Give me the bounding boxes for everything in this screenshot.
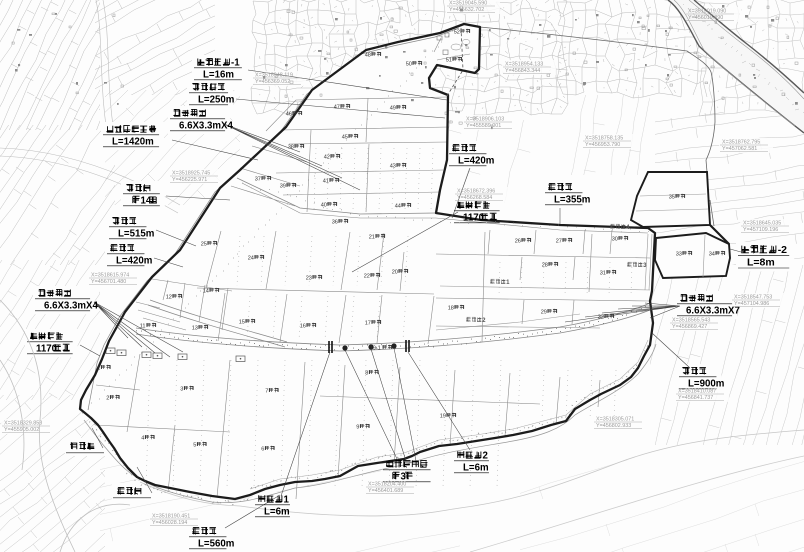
svg-text:26: 26: [515, 238, 521, 244]
svg-text:6: 6: [261, 446, 264, 452]
svg-text:X=3518672.396: X=3518672.396: [457, 189, 495, 195]
svg-text:-1: -1: [231, 58, 240, 69]
svg-text:X=3518948.119: X=3518948.119: [255, 73, 293, 79]
svg-text:52: 52: [454, 29, 460, 35]
svg-text:Y=456869.427: Y=456869.427: [672, 324, 707, 330]
svg-text:L=420m: L=420m: [116, 255, 153, 266]
svg-text:Y=455589.001: Y=455589.001: [466, 123, 501, 129]
svg-text:17: 17: [365, 320, 371, 326]
svg-text:L=250m: L=250m: [198, 94, 235, 105]
svg-text:X=3518190.451: X=3518190.451: [152, 514, 190, 520]
svg-text:32: 32: [598, 314, 604, 320]
svg-text:Y=456843.344: Y=456843.344: [505, 68, 540, 74]
svg-text:13: 13: [192, 325, 198, 331]
svg-text:1: 1: [284, 495, 290, 506]
svg-text:14: 14: [203, 288, 209, 294]
svg-text:X=3519019.090: X=3519019.090: [688, 9, 726, 15]
svg-text:50: 50: [406, 61, 412, 67]
svg-text:1170: 1170: [36, 343, 57, 354]
svg-text:X=3518758.135: X=3518758.135: [585, 136, 623, 142]
svg-text:X=3518410.087: X=3518410.087: [678, 389, 716, 395]
svg-text:34: 34: [709, 251, 715, 257]
svg-text:L=6m: L=6m: [264, 506, 290, 517]
svg-text:L=16m: L=16m: [203, 69, 234, 80]
svg-text:47: 47: [334, 104, 340, 110]
svg-text:30: 30: [612, 236, 618, 242]
svg-text:Y=456028.194: Y=456028.194: [152, 520, 187, 526]
svg-text:21: 21: [369, 234, 375, 240]
svg-text:51: 51: [446, 57, 452, 63]
svg-text:3: 3: [180, 386, 183, 392]
svg-text:X=3518204.400: X=3518204.400: [368, 482, 406, 488]
svg-text:Y=455632.702: Y=455632.702: [449, 7, 484, 13]
svg-text:48: 48: [365, 52, 371, 58]
svg-text:Y=455905.002: Y=455905.002: [4, 427, 39, 433]
svg-text:11: 11: [140, 323, 146, 329]
svg-text:-2: -2: [778, 244, 787, 256]
svg-text:19: 19: [440, 413, 446, 419]
svg-text:49: 49: [390, 105, 396, 111]
svg-text:9: 9: [356, 424, 359, 430]
svg-text:X=3518954.133: X=3518954.133: [505, 62, 543, 68]
svg-text:40: 40: [321, 202, 327, 208]
svg-text:L=8m: L=8m: [747, 257, 775, 269]
svg-text:Y=456953.790: Y=456953.790: [585, 142, 620, 148]
svg-text:33: 33: [676, 251, 682, 257]
svg-text:1: 1: [97, 365, 100, 371]
svg-text:1170: 1170: [463, 212, 484, 223]
svg-text:44: 44: [395, 203, 401, 209]
svg-text:X=3518925.745: X=3518925.745: [172, 171, 210, 177]
svg-text:27: 27: [556, 238, 562, 244]
svg-text:35: 35: [669, 194, 675, 200]
svg-text:X=3518615.974: X=3518615.974: [91, 273, 129, 279]
svg-text:Y=456019.890: Y=456019.890: [688, 15, 723, 21]
svg-text:6.6X3.3mX4: 6.6X3.3mX4: [179, 120, 233, 131]
svg-text:12: 12: [166, 294, 172, 300]
svg-text:46: 46: [286, 111, 292, 117]
svg-text:L=420m: L=420m: [458, 155, 495, 166]
svg-text:X=3518565.543: X=3518565.543: [672, 318, 710, 324]
svg-text:31: 31: [600, 270, 606, 276]
svg-text:X=3518645.035: X=3518645.035: [743, 221, 781, 227]
svg-text:2: 2: [106, 395, 109, 401]
svg-text:Y=456701.480: Y=456701.480: [91, 279, 126, 285]
svg-text:38: 38: [288, 144, 294, 150]
svg-text:Y=456841.737: Y=456841.737: [678, 395, 713, 401]
svg-text:36: 36: [332, 219, 338, 225]
svg-text:L=515m: L=515m: [118, 228, 155, 239]
svg-text:L=560m: L=560m: [198, 538, 235, 549]
svg-text:15: 15: [239, 319, 245, 325]
svg-text:22: 22: [364, 273, 370, 279]
svg-text:Y=457109.196: Y=457109.196: [743, 227, 778, 233]
svg-text:23: 23: [306, 275, 312, 281]
svg-text:20: 20: [392, 269, 398, 275]
svg-text:X=3518762.795: X=3518762.795: [722, 140, 760, 146]
svg-text:X=3519045.590: X=3519045.590: [449, 1, 487, 7]
svg-text:6.6X3.3mX7: 6.6X3.3mX7: [686, 305, 740, 316]
svg-text:37: 37: [255, 176, 261, 182]
svg-text:Y=456268.584: Y=456268.584: [457, 195, 492, 201]
svg-text:29: 29: [541, 309, 547, 315]
svg-text:X=3518547.753: X=3518547.753: [734, 295, 772, 301]
svg-text:Y=457062.581: Y=457062.581: [722, 146, 757, 152]
svg-text:25: 25: [201, 241, 207, 247]
svg-text:19-1: 19-1: [370, 345, 381, 351]
svg-text:5: 5: [193, 442, 196, 448]
svg-text:Y=456369.052: Y=456369.052: [255, 79, 290, 85]
svg-text:7: 7: [265, 388, 268, 394]
svg-text:2: 2: [483, 451, 488, 462]
svg-text:6.6X3.3mX4: 6.6X3.3mX4: [44, 300, 98, 311]
svg-text:39: 39: [280, 183, 286, 189]
svg-text:18: 18: [448, 305, 454, 311]
svg-text:L=6m: L=6m: [463, 462, 489, 473]
svg-text:4: 4: [141, 435, 144, 441]
svg-text:Y=457104.986: Y=457104.986: [734, 301, 769, 307]
svg-text:8: 8: [365, 370, 368, 376]
svg-text:L=355m: L=355m: [554, 194, 591, 205]
svg-text:43: 43: [390, 163, 396, 169]
svg-text:X=3518305.071: X=3518305.071: [596, 417, 634, 423]
svg-text:24: 24: [248, 255, 254, 261]
svg-text:X=3518906.103: X=3518906.103: [466, 117, 504, 123]
svg-text:Y=456225.971: Y=456225.971: [172, 177, 207, 183]
svg-text:Y=456802.933: Y=456802.933: [596, 423, 631, 429]
svg-text:16: 16: [300, 323, 306, 329]
svg-text:45: 45: [342, 134, 348, 140]
svg-text:42: 42: [324, 154, 330, 160]
svg-text:Y=456401.689: Y=456401.689: [368, 488, 403, 494]
svg-text:41: 41: [323, 178, 329, 184]
svg-text:L=1420m: L=1420m: [112, 136, 154, 147]
svg-text:28: 28: [542, 262, 548, 268]
